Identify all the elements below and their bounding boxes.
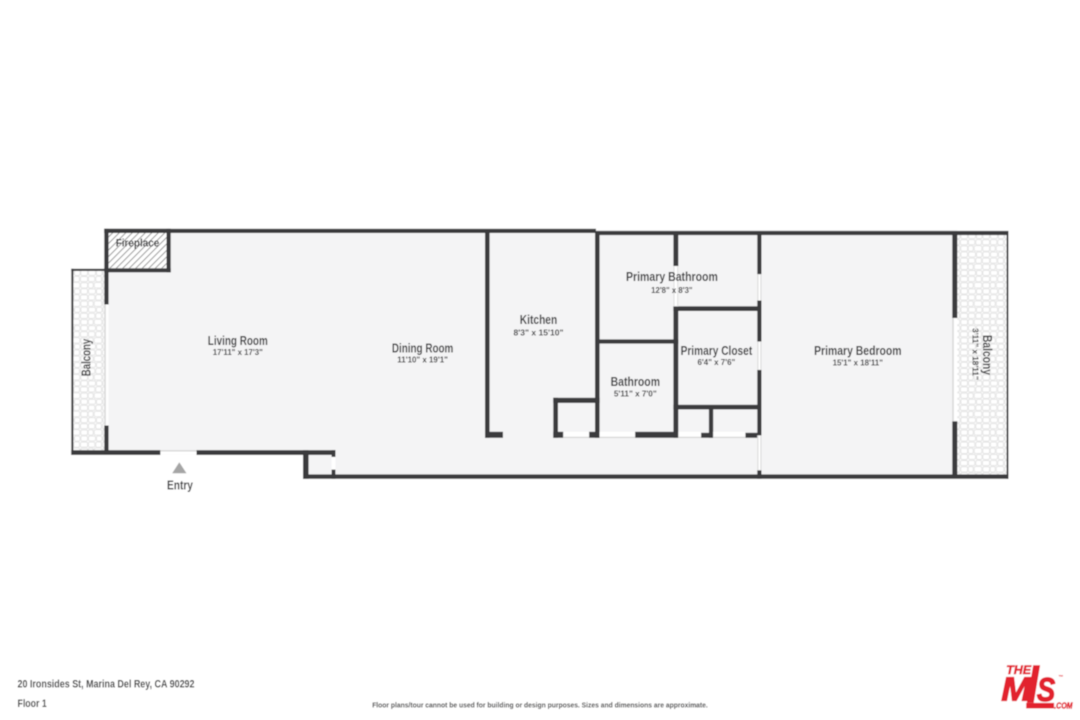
svg-text:Primary Bedroom: Primary Bedroom [814,344,901,358]
svg-text:20 Ironsides St, Marina Del Re: 20 Ironsides St, Marina Del Rey, CA 9029… [18,679,195,691]
svg-text:Floor plans/tour cannot be use: Floor plans/tour cannot be used for buil… [372,700,708,709]
svg-text:Dining Room: Dining Room [392,341,454,355]
svg-text:5'11" x 7'0": 5'11" x 7'0" [614,388,657,398]
svg-text:™: ™ [1058,674,1063,680]
svg-text:Fireplace: Fireplace [116,237,160,249]
svg-text:Living Room: Living Room [208,334,268,348]
svg-text:11'10" x 19'1": 11'10" x 19'1" [397,355,448,365]
svg-text:Floor 1: Floor 1 [18,698,47,710]
svg-text:Entry: Entry [167,478,193,492]
svg-text:15'1" x 18'11": 15'1" x 18'11" [833,358,883,368]
svg-text:8'3" x 15'10": 8'3" x 15'10" [514,327,564,337]
svg-text:Primary Closet: Primary Closet [681,344,753,358]
svg-text:Balcony: Balcony [980,335,994,375]
svg-text:Primary Bathroom: Primary Bathroom [626,270,718,284]
svg-text:12'8" x 8'3": 12'8" x 8'3" [651,285,693,295]
svg-text:Balcony: Balcony [79,339,93,377]
svg-text:6'4" x 7'6": 6'4" x 7'6" [698,357,736,367]
svg-text:17'11" x 17'3": 17'11" x 17'3" [213,347,263,357]
svg-text:.COM: .COM [1054,701,1073,711]
svg-text:Kitchen: Kitchen [520,313,557,327]
svg-text:3'11" x 18'11": 3'11" x 18'11" [970,328,980,380]
svg-text:Bathroom: Bathroom [611,375,660,389]
